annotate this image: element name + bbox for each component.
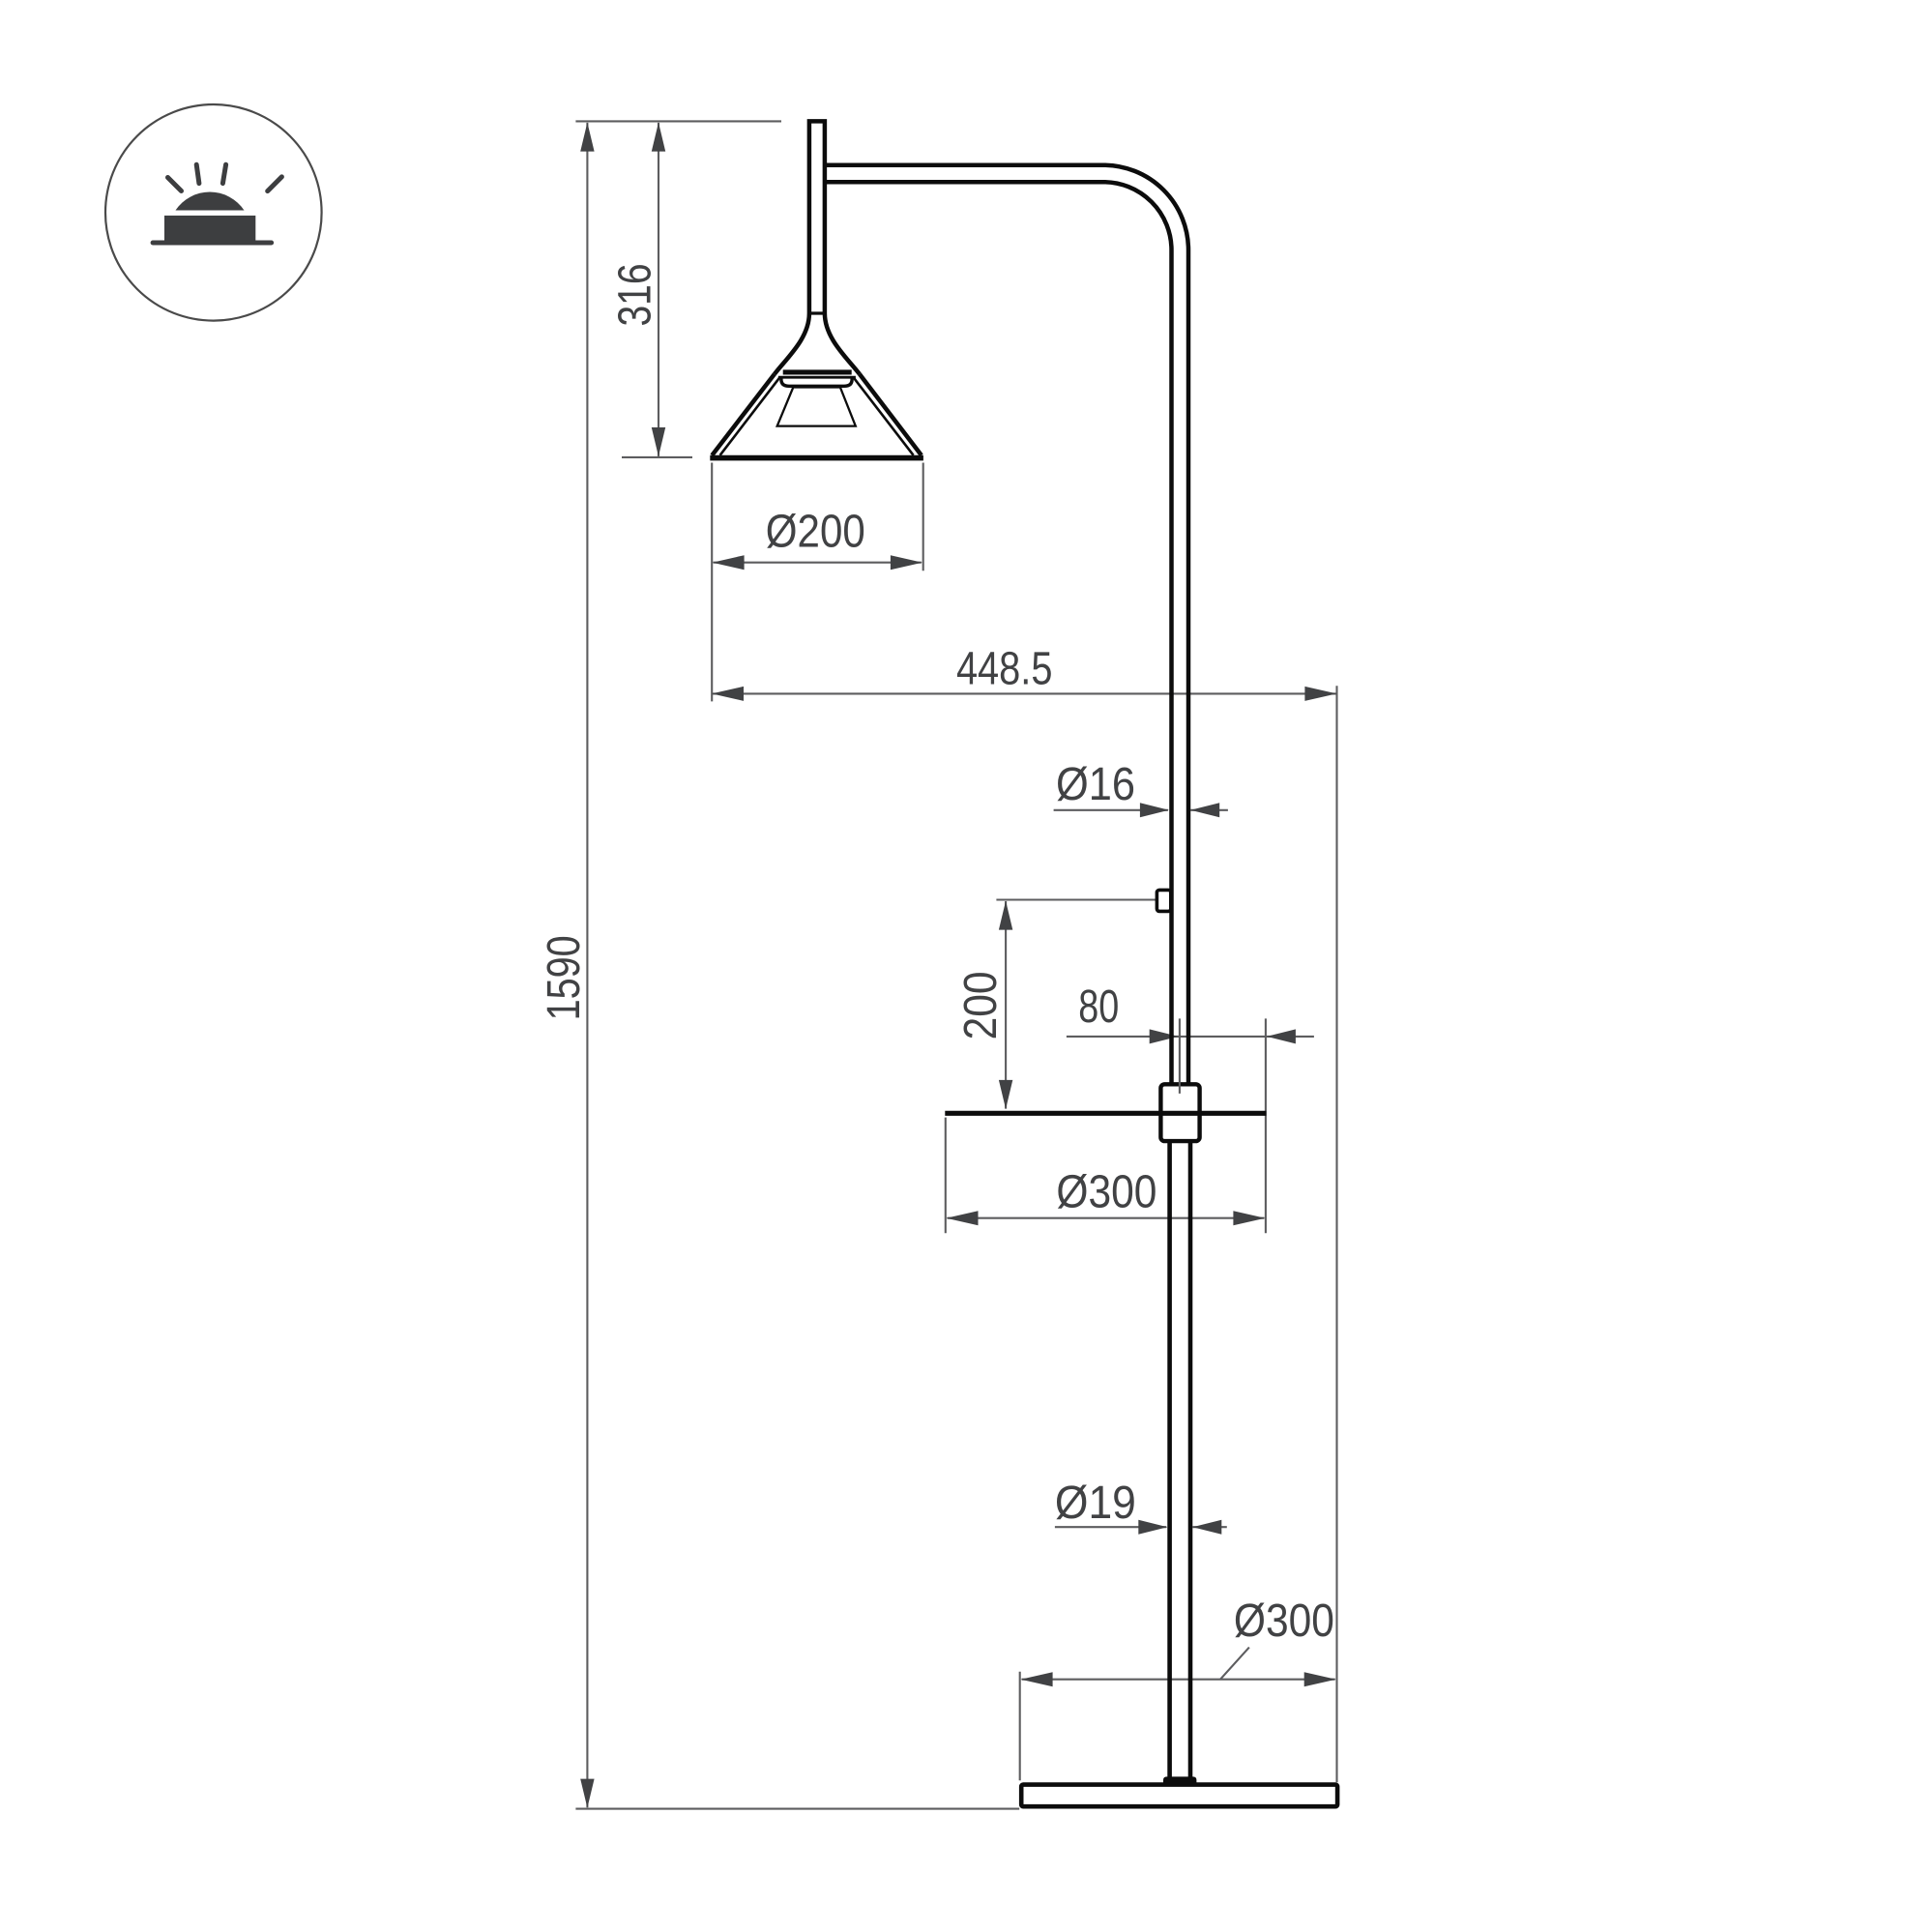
svg-text:200: 200 (955, 971, 1007, 1039)
svg-text:80: 80 (1078, 981, 1119, 1033)
svg-text:Ø300: Ø300 (1056, 1166, 1156, 1217)
svg-text:Ø19: Ø19 (1055, 1478, 1136, 1529)
svg-text:Ø16: Ø16 (1056, 759, 1135, 810)
svg-text:448.5: 448.5 (956, 643, 1053, 694)
svg-text:Ø200: Ø200 (766, 507, 865, 558)
svg-text:Ø300: Ø300 (1234, 1595, 1334, 1647)
svg-text:316: 316 (610, 264, 661, 327)
svg-text:1590: 1590 (539, 935, 590, 1020)
